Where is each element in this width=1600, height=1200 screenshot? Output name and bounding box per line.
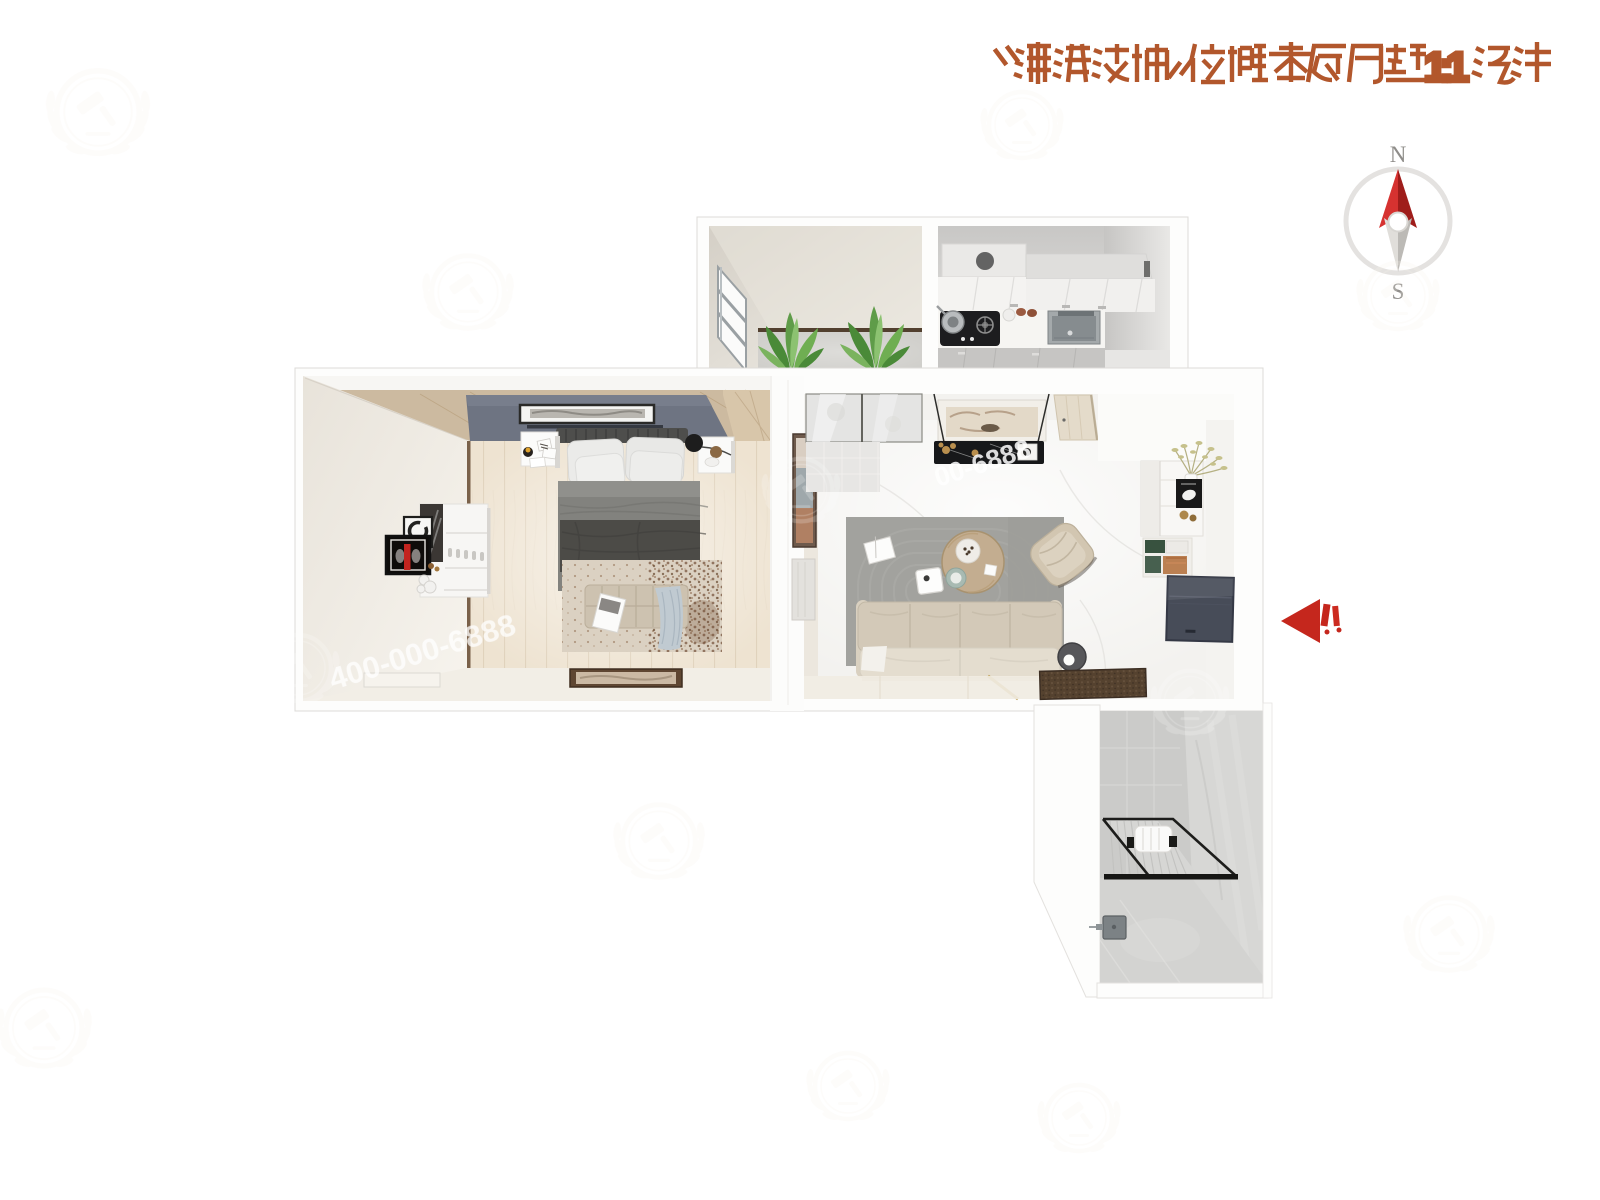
svg-text:N: N [1390,142,1407,167]
svg-text:1:1: 1:1 [1424,44,1469,90]
